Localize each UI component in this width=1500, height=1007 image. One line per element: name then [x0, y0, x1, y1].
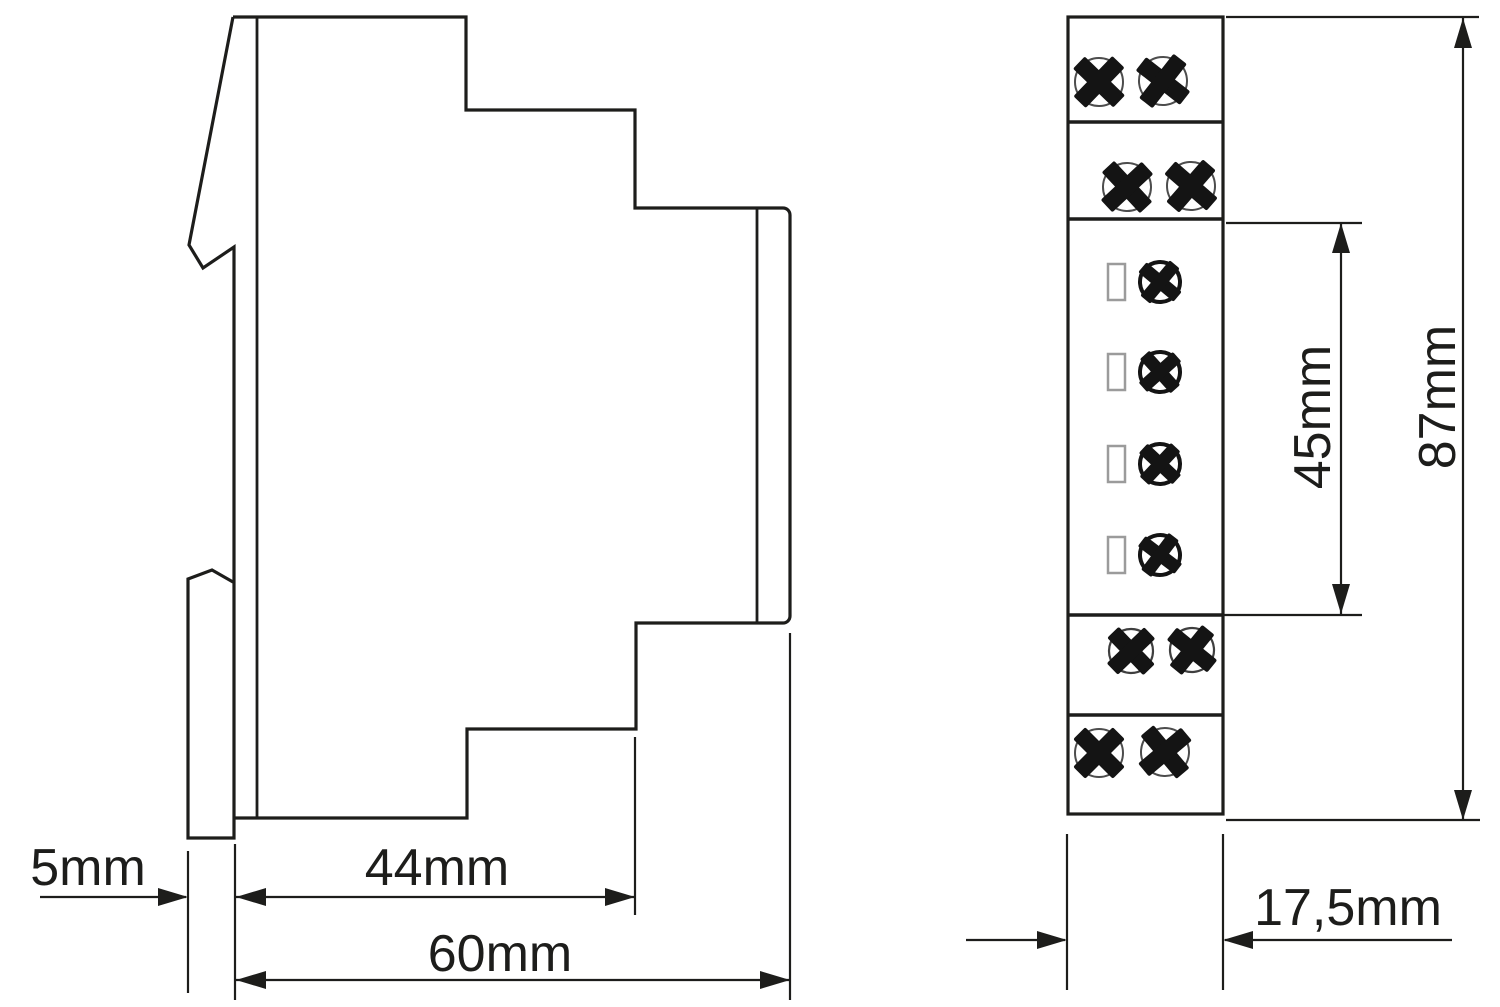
- arrowhead-17-5mm-left-pointing: [1223, 931, 1253, 949]
- dimension-label-44mm: 44mm: [365, 839, 509, 897]
- side-view: [188, 17, 790, 838]
- dimension-label-17-5mm: 17,5mm: [1254, 879, 1442, 937]
- side-view-outline: [233, 17, 790, 818]
- technical-drawing: 5mm 44mm 60mm: [0, 0, 1500, 1007]
- terminal-slot: [1108, 537, 1125, 573]
- dimension-label-87mm: 87mm: [1409, 325, 1467, 469]
- arrowhead-44mm-right: [605, 888, 635, 906]
- terminal-slot: [1108, 354, 1125, 390]
- arrowhead-5mm: [158, 888, 188, 906]
- dimension-label-5mm: 5mm: [30, 839, 146, 897]
- arrowhead-60mm-right: [760, 971, 790, 989]
- din-rail-clip: [188, 17, 234, 838]
- arrowhead-60mm-left: [236, 971, 266, 989]
- arrowhead-45mm-down: [1332, 584, 1350, 614]
- arrowhead-45mm-up: [1332, 223, 1350, 253]
- arrowhead-87mm-up: [1454, 18, 1472, 48]
- terminal-slot: [1108, 264, 1125, 300]
- arrowhead-44mm-left: [236, 888, 266, 906]
- dimension-label-60mm: 60mm: [428, 925, 572, 983]
- arrowhead-87mm-down: [1454, 790, 1472, 820]
- dimension-label-45mm: 45mm: [1284, 345, 1342, 489]
- terminal-slot: [1108, 446, 1125, 482]
- front-view-body: [1068, 17, 1223, 814]
- arrowhead-17-5mm-right-pointing: [1037, 931, 1067, 949]
- drawing-canvas: 5mm 44mm 60mm: [0, 0, 1500, 1007]
- front-view: [1059, 17, 1230, 814]
